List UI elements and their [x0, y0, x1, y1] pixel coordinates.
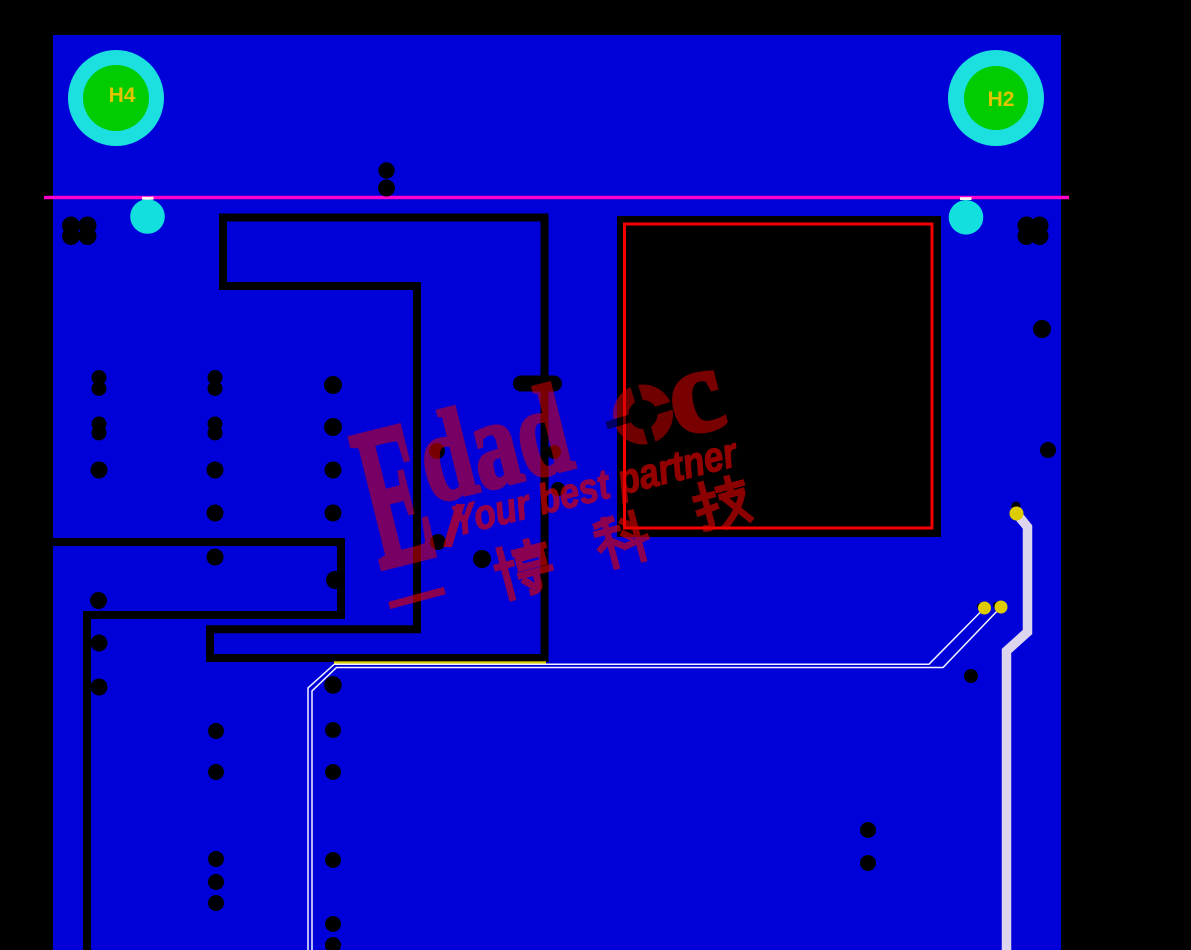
svg-text:H2: H2	[988, 88, 1015, 111]
svg-text:H4: H4	[109, 84, 136, 107]
